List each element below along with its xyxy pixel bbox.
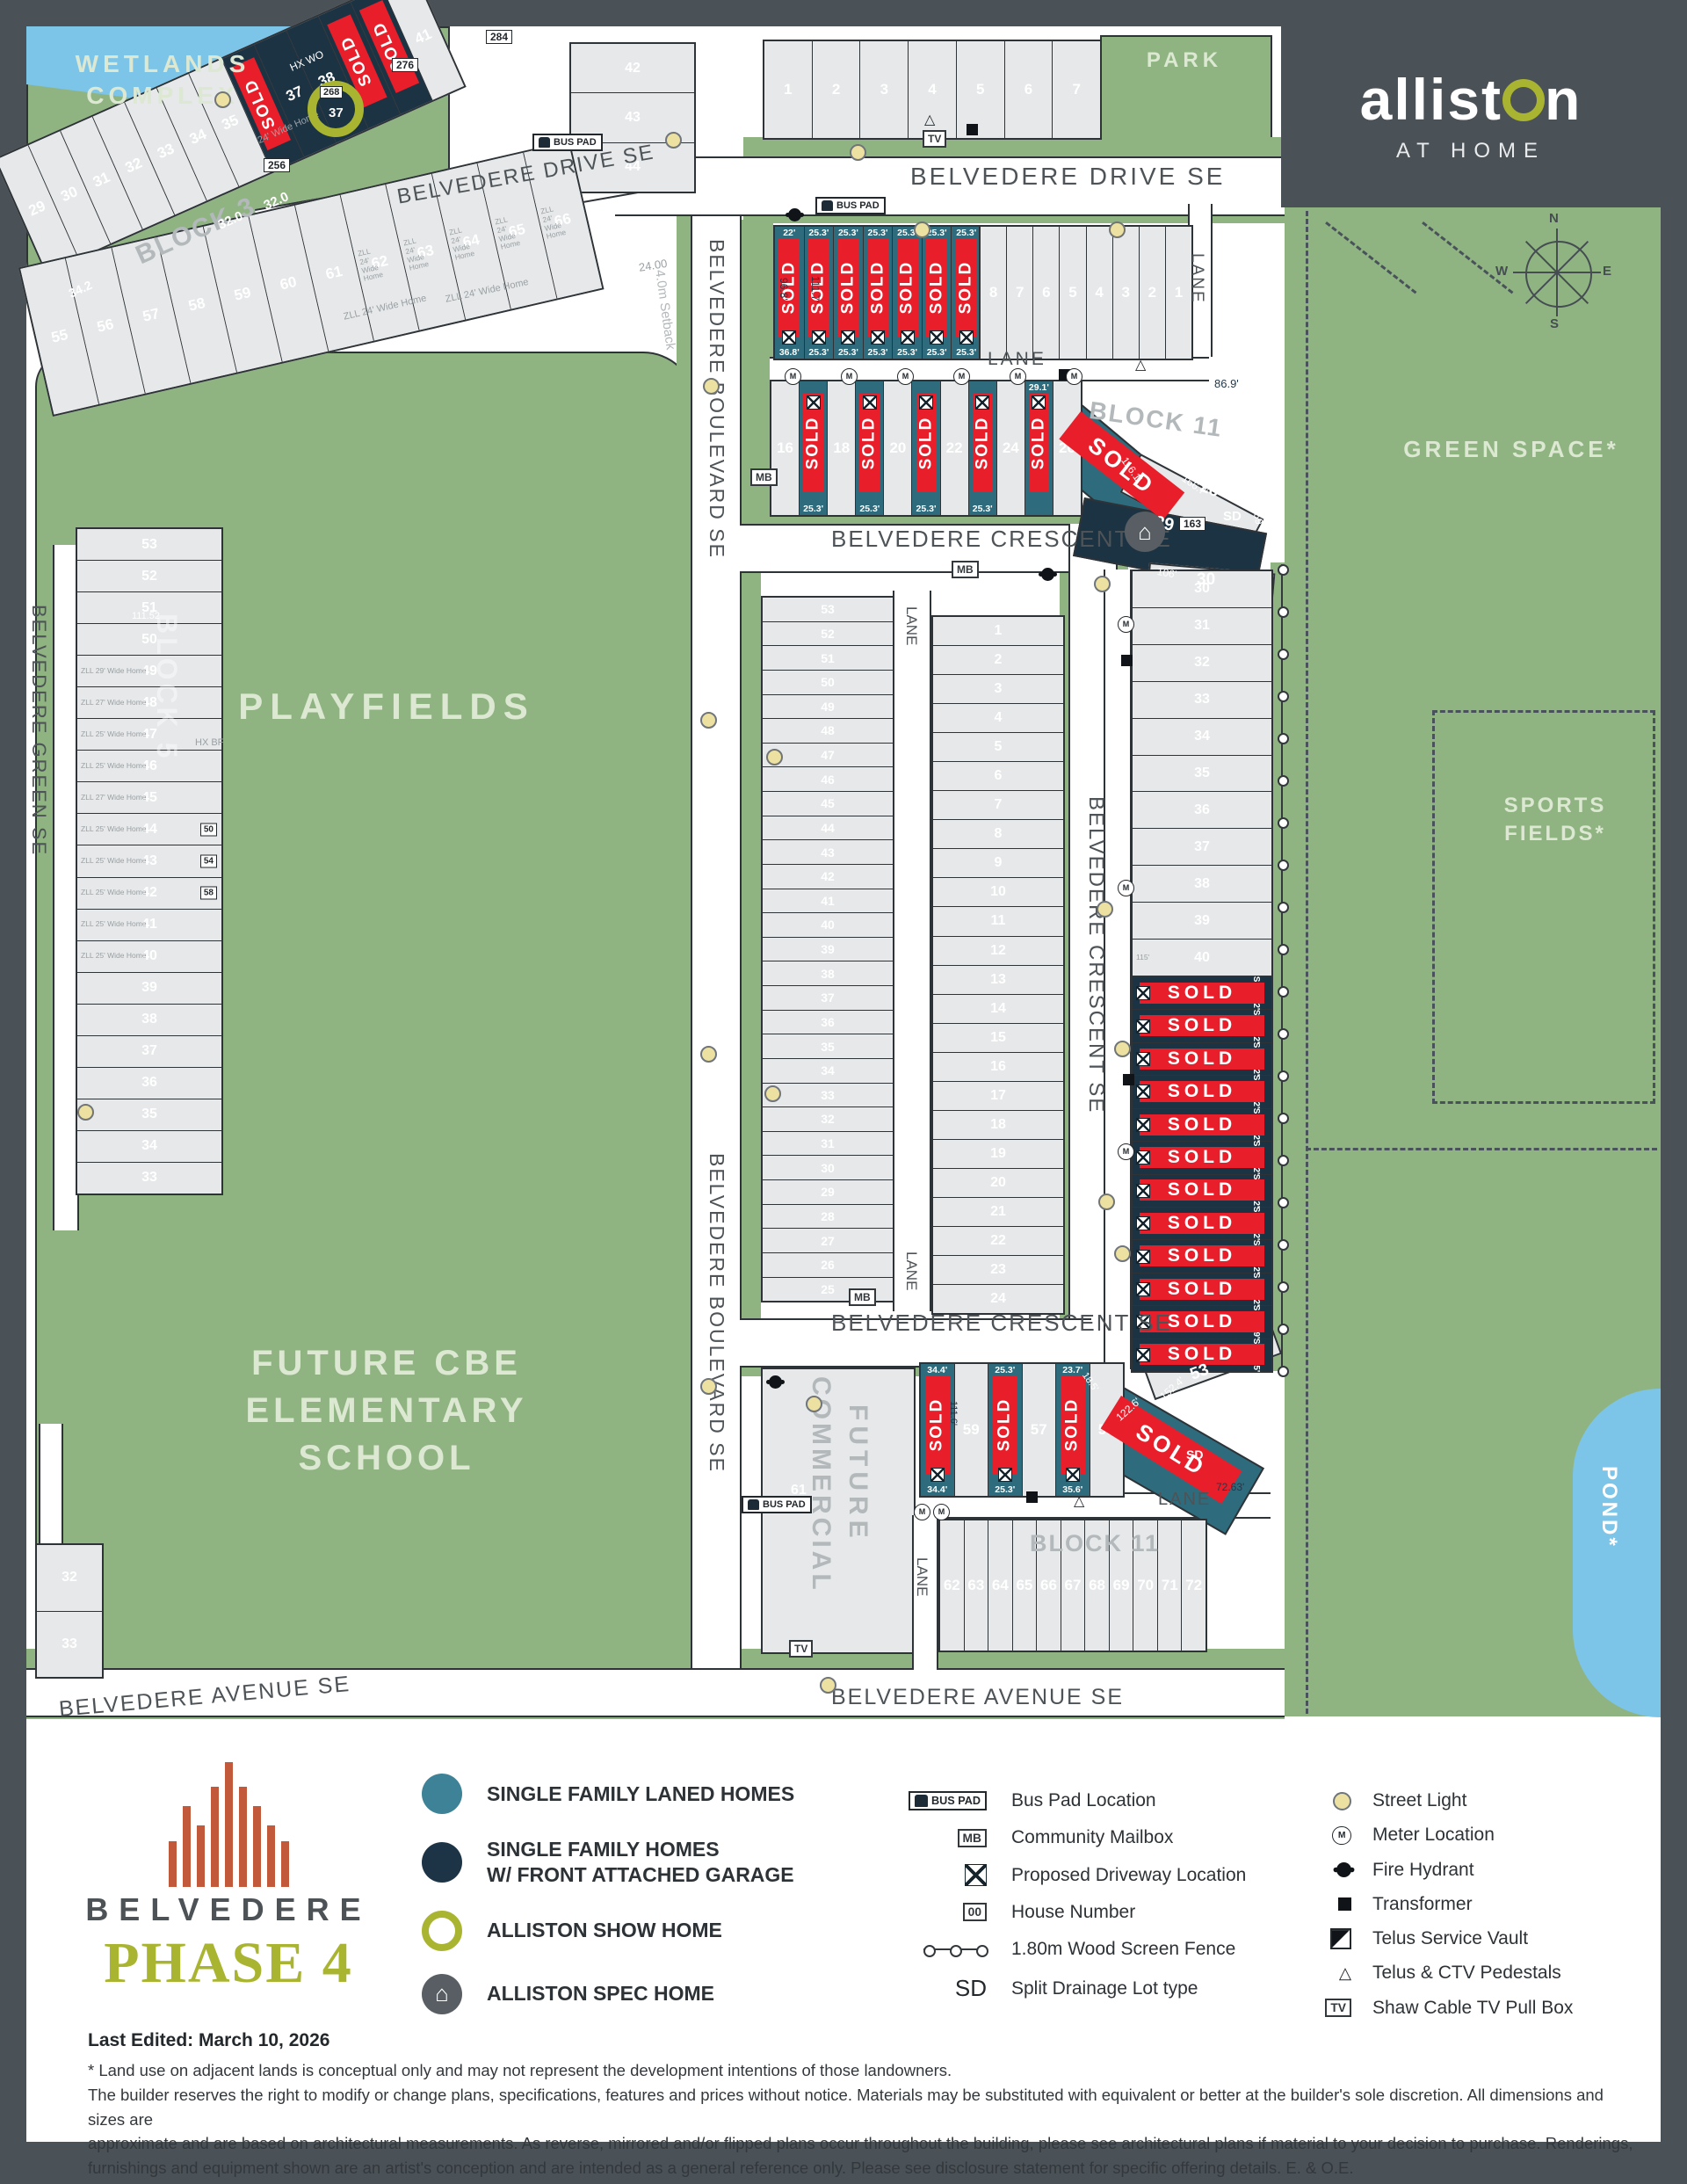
fire-hydrant-icon <box>788 208 801 221</box>
mb-box-holder: MB <box>750 468 778 486</box>
transformer-holder <box>967 124 978 140</box>
lot-number: 13 <box>933 966 1063 994</box>
house-number-box: 268 <box>320 86 343 98</box>
legend-label: Transformer <box>1372 1893 1473 1916</box>
driveway-icon <box>1136 1118 1150 1132</box>
sold-label: SOLD <box>1168 1213 1236 1234</box>
lot: 25.3'SOLD <box>912 381 940 515</box>
street-light-holder <box>1114 1245 1131 1266</box>
meter-icon: M <box>841 368 858 385</box>
sold-label: SOLD <box>860 417 880 470</box>
sold-label: SOLD <box>927 261 946 315</box>
map-label: FUTURE <box>844 1404 872 1543</box>
meter-icon: M <box>1066 368 1082 385</box>
map-label: SD <box>1223 510 1242 524</box>
legend-icon-cell <box>420 1911 464 1951</box>
legend-label: SINGLE FAMILY HOMESW/ FRONT ATTACHED GAR… <box>487 1837 794 1888</box>
mb-box-holder: MB <box>849 1288 876 1306</box>
lot-width-note: ZLL 27' Wide Home <box>81 699 147 707</box>
street-light-holder <box>1098 1194 1115 1215</box>
community-mailbox-icon: MB <box>952 561 979 578</box>
lot: 2 <box>1140 227 1166 359</box>
driveway-icon <box>1136 1150 1150 1165</box>
street-light-holder <box>764 1085 781 1107</box>
lot-number: 50 <box>77 624 221 655</box>
fence-dot <box>1278 1239 1289 1251</box>
legend-icon-cell <box>420 1842 464 1883</box>
sold-banner: SOLD <box>1140 983 1264 1004</box>
sold-label: SOLD <box>1168 1311 1236 1332</box>
bus-icon <box>822 200 833 211</box>
triangle-holder: △ <box>924 112 935 128</box>
street-light-holder <box>214 91 231 112</box>
lot: 6 <box>1033 227 1060 359</box>
legend-label: Community Mailbox <box>1011 1826 1173 1849</box>
bus-pad-icon: BUS PAD <box>532 134 603 151</box>
lot-number: 45 <box>763 792 893 816</box>
driveway-icon <box>863 395 877 410</box>
lot: 5 <box>933 733 1063 762</box>
map-label: COMPLEX <box>53 83 272 108</box>
map-label: 111.6' <box>947 1401 958 1426</box>
meter-icon: M <box>933 1504 950 1520</box>
driveway-icon <box>919 395 933 410</box>
legend-icon-cell <box>1314 1792 1351 1810</box>
lot: 8 <box>981 227 1007 359</box>
triangle-holder: △ <box>1135 358 1146 374</box>
street-light-icon <box>77 1104 94 1121</box>
tv-pull-box-icon: TV <box>923 130 946 148</box>
lot-frontage: 25.3' <box>923 347 952 358</box>
transformer-icon <box>1338 1897 1351 1911</box>
lot-number: 31 <box>1133 608 1271 644</box>
house-number-box: 163 <box>1179 517 1206 531</box>
lot-number: 6 <box>1033 227 1059 359</box>
lot: SD 29.2'SOLD <box>1133 1043 1271 1076</box>
map-label: LANE <box>1188 253 1206 304</box>
sold-banner: SOLD <box>1140 1147 1264 1168</box>
lot-number: 44 <box>763 816 893 840</box>
lot-frontage: 25.3' <box>969 504 996 514</box>
meter-icon: M <box>1332 1826 1351 1846</box>
street-light-holder <box>700 1046 717 1067</box>
lot-number: 42 <box>763 865 893 889</box>
show-home-ring-icon: 26837 <box>308 81 364 137</box>
lot-number: 4 <box>1087 227 1112 359</box>
driveway-icon <box>1066 1468 1080 1482</box>
lot-width-note: ZLL 25' Wide Home <box>81 730 147 739</box>
fence-dot <box>1278 1197 1289 1208</box>
lot: 8 <box>933 820 1063 849</box>
legend-label: ALLISTON SPEC HOME <box>487 1981 714 2006</box>
lot: 48ZLL 27' Wide Home <box>77 687 221 719</box>
transformer-holder <box>1123 1074 1134 1090</box>
fence-dot <box>1278 775 1289 787</box>
tv-box-holder: TV <box>789 1640 813 1658</box>
driveway-icon <box>930 1468 945 1482</box>
meter-holder: M <box>933 1503 950 1520</box>
bus-pad-text: BUS PAD <box>931 1795 981 1807</box>
legend-home-types: SINGLE FAMILY LANED HOMESSINGLE FAMILY H… <box>420 1774 794 2014</box>
lot: 34 <box>1133 719 1271 756</box>
lot: 35 <box>763 1034 893 1059</box>
lot-number: 42 <box>571 44 694 92</box>
lot-number: 31 <box>763 1132 893 1156</box>
lot-number: 71 <box>1158 1520 1182 1651</box>
sold-banner: SOLD <box>925 1376 950 1474</box>
lot: 27 <box>763 1229 893 1253</box>
lot: 63 <box>965 1520 989 1651</box>
lot: 15 <box>933 1024 1063 1053</box>
house-number-icon: 00 <box>963 1903 987 1921</box>
lot-number: 20 <box>933 1169 1063 1197</box>
street-light-holder <box>77 1104 94 1125</box>
map-label: LANE <box>914 1557 930 1596</box>
lot-number: 3 <box>1113 227 1139 359</box>
wood-screen-fence-icon <box>923 1944 987 1955</box>
lot-group-crescent-north-row: 1625.3'SOLD1825.3'SOLD2025.3'SOLD2225.3'… <box>770 380 1082 517</box>
lot: 3 <box>933 675 1063 704</box>
lot-number: 22 <box>941 381 968 515</box>
show-home-ring-icon <box>422 1911 462 1951</box>
sold-banner: SOLD <box>837 239 858 337</box>
legend-item: MBCommunity Mailbox <box>903 1826 1246 1849</box>
meter-icon: M <box>897 368 914 385</box>
sold-banner: SOLD <box>1140 1114 1264 1136</box>
sold-banner: SOLD <box>897 239 918 337</box>
bus-pad-text: BUS PAD <box>763 1499 806 1510</box>
lot-frontage: 25.3' <box>834 228 863 238</box>
lot: 30 <box>763 1156 893 1180</box>
lot: 35 <box>77 1099 221 1131</box>
map-label: SPORTS <box>1494 795 1617 816</box>
legend-label: Telus Service Vault <box>1372 1927 1528 1950</box>
legend-label: House Number <box>1011 1901 1135 1924</box>
lot-number: 46 <box>763 767 893 791</box>
lot-frontage: 34.4' <box>921 1484 954 1495</box>
map-label: 111.52 <box>132 612 160 622</box>
lot: 13 <box>933 966 1063 995</box>
street-light-icon <box>665 132 682 149</box>
belvedere-logo-icon <box>114 1789 343 1887</box>
legend-map-symbols: BUS PADBus Pad LocationMBCommunity Mailb… <box>903 1789 1246 2002</box>
lot-number: 33 <box>77 1163 221 1194</box>
pedestal-triangle-icon: △ <box>1339 1965 1351 1981</box>
street-verge <box>743 137 1285 158</box>
lot: 9 <box>933 849 1063 878</box>
lot: SD 29.2'SOLD <box>1133 1208 1271 1240</box>
pedestal-triangle-icon: △ <box>924 113 935 127</box>
lane <box>893 591 931 1311</box>
map-label: BELVEDERE CRESCENT SE <box>831 527 1172 551</box>
sold-label: SOLD <box>1168 1147 1236 1168</box>
lot-number: 34 <box>763 1059 893 1083</box>
triangle-holder: △ <box>1074 1494 1084 1510</box>
meter-icon: M <box>1010 368 1026 385</box>
lot-number: 35 <box>763 1034 893 1058</box>
compass-letter: N <box>1549 211 1559 226</box>
lot: 25.3'SOLD <box>969 381 997 515</box>
legend-icon-cell <box>1314 1928 1351 1949</box>
alliston-logo: allistn <box>1360 70 1582 128</box>
driveway-icon <box>975 395 989 410</box>
meter-icon: M <box>914 1504 930 1520</box>
sold-banner: SOLD <box>1140 1081 1264 1102</box>
sold-banner: SOLD <box>956 239 977 337</box>
lot: 62 <box>940 1520 965 1651</box>
lot-number: 16 <box>933 1053 1063 1081</box>
lot: 33 <box>37 1612 102 1678</box>
map-label: SCHOOL <box>237 1440 536 1477</box>
lot-group-crescent-east-col: 123456789101112131415161718192021222324 <box>931 615 1065 1315</box>
lot-number: 22 <box>933 1227 1063 1255</box>
lot-number: 15 <box>933 1024 1063 1052</box>
legend-item: Proposed Driveway Location <box>903 1864 1246 1887</box>
sold-label: SOLD <box>1168 1245 1236 1266</box>
street-light-icon <box>914 221 930 238</box>
lot-number: 2 <box>813 41 860 138</box>
lot: SD 29.2'SOLD <box>1133 1109 1271 1142</box>
driveway-icon <box>1136 1282 1150 1296</box>
lot-group-avenue-west-col: 3233 <box>35 1543 104 1679</box>
brand-bar <box>281 1841 289 1887</box>
driveway-icon <box>871 330 885 345</box>
lot: 49 <box>763 695 893 720</box>
lot-number: 37 <box>763 986 893 1010</box>
lot-number: 26 <box>763 1253 893 1277</box>
lot: 22 <box>941 381 969 515</box>
tv-pull-box-icon: TV <box>1325 1999 1351 2017</box>
legend-label: Split Drainage Lot type <box>1011 1977 1198 2000</box>
map-label: BELVEDERE GREEN SE <box>29 605 49 856</box>
spec-home-icon: ⌂ <box>422 1974 462 2014</box>
map-label: 111.7' <box>809 276 821 303</box>
lot-number: 39 <box>763 938 893 961</box>
lot: 44 <box>763 816 893 841</box>
sold-label: SOLD <box>1168 1048 1236 1070</box>
meter-holder: M <box>914 1503 930 1520</box>
lot-frontage: 25.3' <box>864 228 893 238</box>
map-label: FUTURE CBE <box>237 1345 536 1382</box>
split-drainage-icon: SD <box>955 1975 987 2002</box>
lot-number: 7 <box>1053 41 1100 138</box>
sold-label: SOLD <box>1168 983 1236 1004</box>
fence-dot <box>1278 1113 1289 1124</box>
lot-number: 21 <box>933 1198 1063 1226</box>
driveway-icon <box>1136 1216 1150 1230</box>
sold-banner: SOLD <box>1061 1376 1085 1474</box>
map-label: LANE <box>1158 1491 1211 1509</box>
lot-number: 34 <box>77 1131 221 1162</box>
lot-number: 2 <box>1140 227 1165 359</box>
house-number-box: 58 <box>200 887 217 900</box>
lot: 12 <box>933 937 1063 966</box>
lot: 11 <box>933 907 1063 936</box>
lot-number: 5 <box>1060 227 1085 359</box>
map-label: 30 <box>1197 571 1215 589</box>
lot: 33 <box>763 1084 893 1108</box>
lot-number: 34 <box>1133 719 1271 755</box>
street-light-holder <box>820 1677 836 1698</box>
map-label: PLAYFIELDS <box>237 687 536 726</box>
lot-number: 57 <box>1023 1364 1056 1496</box>
lot-number: 19 <box>933 1140 1063 1168</box>
legend-label: Telus & CTV Pedestals <box>1372 1962 1561 1984</box>
compass-letter: W <box>1495 264 1508 279</box>
transformer-holder <box>1026 1491 1038 1507</box>
sold-label: SOLD <box>996 1398 1015 1452</box>
lot-number: 24 <box>997 381 1025 515</box>
legend-item: BUS PADBus Pad Location <box>903 1789 1246 1812</box>
fence-dot <box>1278 606 1289 618</box>
belvedere-brand-name: BELVEDERE <box>83 1891 373 1928</box>
lot: 31 <box>1133 608 1271 645</box>
lot-number: 37 <box>77 1036 221 1067</box>
driveway-icon <box>782 330 796 345</box>
map-label: 72.63' <box>1216 1482 1244 1493</box>
alliston-logo-block: allistn AT HOME <box>1281 26 1661 207</box>
bus-pad-holder: BUS PAD <box>815 197 886 215</box>
lot: SD 29.2'SOLD <box>1133 1142 1271 1174</box>
fire-hydrant-holder <box>1041 568 1054 585</box>
lot: 64 <box>988 1520 1013 1651</box>
lot-width-note: ZLL 25' Wide Home <box>81 825 147 834</box>
legend-icon-cell: 00 <box>903 1903 987 1921</box>
street-light-icon <box>1114 1041 1131 1057</box>
lot-number: 5 <box>957 41 1004 138</box>
lot-group-drive-south-sold-row: 22'36.8'SOLD25.3'25.3'SOLD25.3'25.3'SOLD… <box>773 225 982 360</box>
transformer-icon <box>967 124 978 135</box>
legend-item: △Telus & CTV Pedestals <box>1314 1962 1573 1984</box>
lot-frontage: 29.1' <box>1025 382 1053 393</box>
logo-text-pre: allist <box>1360 67 1502 132</box>
lot: 10 <box>933 878 1063 907</box>
lot-number: 51 <box>763 646 893 670</box>
fence-dot <box>1278 944 1289 955</box>
lot-width-note: ZLL 29' Wide Home <box>81 667 147 676</box>
alliston-logo-subtitle: AT HOME <box>1396 139 1546 163</box>
tv-box-holder: TV <box>923 130 946 148</box>
bus-icon <box>539 137 550 148</box>
sold-banner: SOLD <box>1140 1048 1264 1070</box>
legend-icon-cell: MB <box>903 1829 987 1847</box>
lot: 7 <box>933 791 1063 820</box>
lot: 5 <box>957 41 1005 138</box>
lot-number: 2 <box>933 646 1063 674</box>
fence-dot <box>1278 691 1289 702</box>
lot-number: 36 <box>1133 792 1271 828</box>
lot-frontage: 36.8' <box>775 347 804 358</box>
sold-banner: SOLD <box>1140 1245 1264 1266</box>
lot: 44ZLL 25' Wide Home50 <box>77 814 221 845</box>
fire-hydrant-icon <box>769 1375 782 1389</box>
lot: 39 <box>763 938 893 962</box>
lot-number: 38 <box>77 1005 221 1035</box>
street-light-holder <box>703 378 720 399</box>
lot-number: 30 <box>763 1156 893 1179</box>
tv-pull-box-icon: TV <box>789 1640 813 1658</box>
lot: 37 <box>77 1036 221 1068</box>
lot: 45ZLL 27' Wide Home <box>77 782 221 814</box>
lot-frontage: 25.3' <box>988 1365 1022 1375</box>
lot: 41ZLL 25' Wide Home <box>77 910 221 941</box>
lot-number: 37 <box>1133 829 1271 865</box>
lot: 40 <box>763 913 893 938</box>
fence-dot <box>1278 986 1289 998</box>
lot: 29.1'SOLD <box>1025 381 1053 515</box>
lot: 52 <box>77 561 221 592</box>
legend-item: SDSplit Drainage Lot type <box>903 1975 1246 2002</box>
lot-number: 11 <box>933 907 1063 935</box>
lot-number: 12 <box>933 937 1063 965</box>
lot-number: 10 <box>933 878 1063 906</box>
logo-olive-o-icon <box>1502 79 1545 121</box>
lot-frontage: 22' <box>775 228 804 238</box>
driveway-icon <box>998 1468 1012 1482</box>
lot: 4 <box>933 704 1063 733</box>
lot: 7 <box>1007 227 1033 359</box>
street-light-holder <box>850 144 866 165</box>
lot-number: 52 <box>763 622 893 646</box>
lot-number: 32 <box>763 1107 893 1131</box>
sold-label: SOLD <box>804 417 823 470</box>
lot-number: 5 <box>933 733 1063 761</box>
street-light-icon <box>700 1046 717 1063</box>
lot-number: 20 <box>884 381 911 515</box>
driveway-icon <box>959 330 974 345</box>
lot: 51 <box>763 646 893 671</box>
lot-frontage: 25.3' <box>864 347 893 358</box>
lot: 1 <box>764 41 813 138</box>
meter-icon: M <box>1118 880 1134 896</box>
legend-icon-cell: SD <box>903 1975 987 2002</box>
lot: 21 <box>933 1198 1063 1227</box>
lot-number: 32 <box>1133 645 1271 681</box>
lot-width-note: ZLL 25' Wide Home <box>81 889 147 897</box>
lot-number: 32 <box>37 1545 102 1611</box>
sold-label: SOLD <box>928 1398 947 1452</box>
lot: 25.3'SOLD <box>800 381 828 515</box>
legend-item: MMeter Location <box>1314 1824 1573 1847</box>
bus-pad-icon: BUS PAD <box>815 197 886 214</box>
legend-label: 1.80m Wood Screen Fence <box>1011 1938 1235 1961</box>
driveway-icon <box>1032 395 1046 410</box>
lot: 2 <box>933 646 1063 675</box>
lot: 20 <box>933 1169 1063 1198</box>
legend-label: Proposed Driveway Location <box>1011 1864 1246 1887</box>
map-label: PARK <box>1100 49 1269 71</box>
lot-number: 36 <box>763 1011 893 1034</box>
street-light-icon <box>700 712 717 729</box>
street-light-holder <box>665 132 682 153</box>
fence-dot <box>1278 1366 1289 1377</box>
lot-number: 52 <box>77 561 221 591</box>
lot-number: 6 <box>1005 41 1053 138</box>
street-light-icon <box>214 91 231 108</box>
legend-icon-cell: △ <box>1314 1965 1351 1981</box>
lot: 32 <box>37 1545 102 1612</box>
fire-hydrant-icon <box>1041 568 1054 581</box>
meter-holder: M <box>1118 1143 1134 1160</box>
map-label: GREEN SPACE* <box>1379 438 1643 461</box>
brand-bar <box>169 1841 177 1887</box>
map-label: BELVEDERE BOULEVARD SE <box>706 1153 728 1473</box>
map-label: 86.9' <box>1214 378 1239 390</box>
legend-item: ⌂ALLISTON SPEC HOME <box>420 1974 794 2014</box>
fence-dot <box>1278 564 1289 576</box>
fence-dot <box>923 1945 936 1957</box>
meter-holder: M <box>841 367 858 385</box>
